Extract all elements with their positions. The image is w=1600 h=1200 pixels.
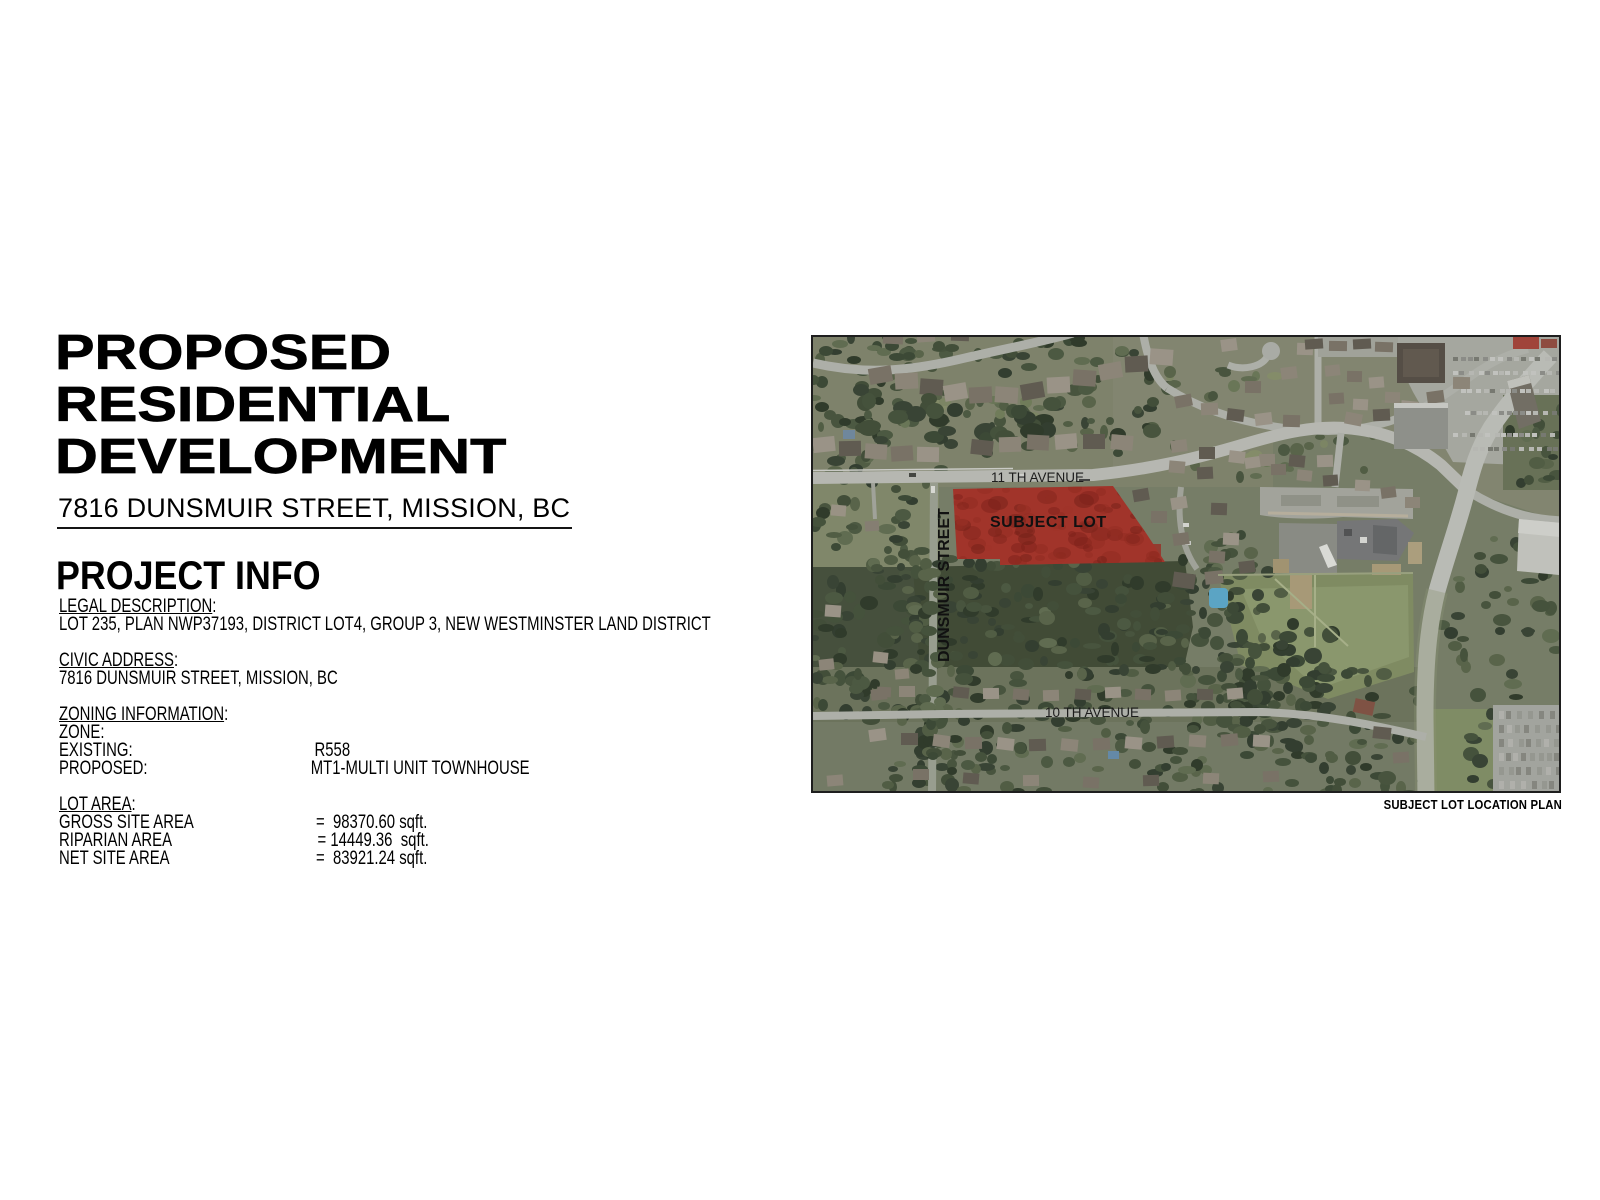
svg-text:DUNSMUIR STREET: DUNSMUIR STREET	[936, 508, 953, 662]
svg-text:SUBJECT LOT: SUBJECT LOT	[990, 514, 1107, 531]
svg-text:11 TH AVENUE: 11 TH AVENUE	[991, 470, 1084, 485]
svg-text:10 TH AVENUE: 10 TH AVENUE	[1045, 705, 1139, 720]
